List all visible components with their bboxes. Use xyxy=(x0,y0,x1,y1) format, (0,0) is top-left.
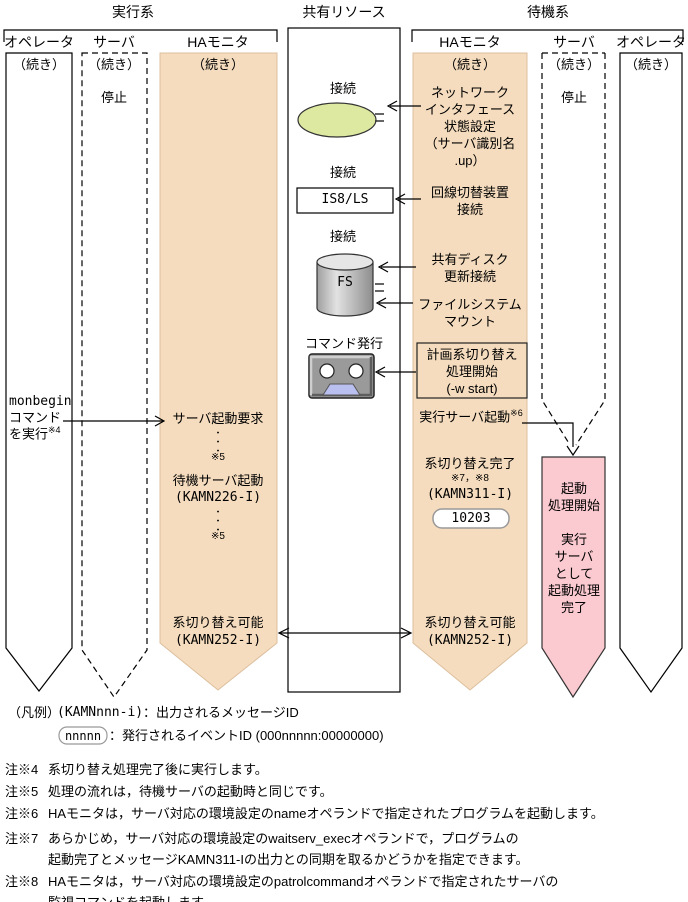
standby-switchable-message-id: (KAMN252-I) xyxy=(405,633,535,649)
lane-exec-operator xyxy=(6,53,72,691)
note6-text: HAモニタは，サーバ対応の環境設定のnameオペランドで指定されたプログラムを起… xyxy=(48,806,683,822)
lane-label-standby-server: サーバ xyxy=(534,34,614,51)
status-standby-server-stopped: 停止 xyxy=(534,90,614,106)
note6-ref: ※6 xyxy=(510,408,523,418)
note4-text: 系切り替え処理完了後に実行します。 xyxy=(48,762,683,778)
exec-switchable-message-id: (KAMN252-I) xyxy=(153,633,283,649)
standby-switchable-label: 系切り替え可能 xyxy=(405,615,535,631)
note7-label: 注※7 xyxy=(5,828,47,849)
step-filesystem-mount: ファイルシステム マウント xyxy=(405,296,535,330)
switch-complete-note-refs: ※7，※8 xyxy=(405,473,535,485)
line-switch-device-label: IS8/LS xyxy=(297,192,393,208)
note4-ref: ※4 xyxy=(48,425,61,435)
cont-standby-ha: （続き） xyxy=(415,57,525,73)
lane-label-exec-ha: HAモニタ xyxy=(163,34,273,51)
lane-label-exec-server: サーバ xyxy=(74,34,154,51)
note6-label: 注※6 xyxy=(5,806,47,822)
legend-message-desc: ：出力されるメッセージID xyxy=(143,705,393,721)
step-shared-disk-update: 共有ディスク 更新接続 xyxy=(405,251,535,285)
network-interface-icon xyxy=(298,103,376,137)
note5-label: 注※5 xyxy=(5,784,47,800)
step-switch-complete: 系切り替え完了 xyxy=(405,456,535,472)
lane-label-exec-operator: オペレータ xyxy=(0,34,79,51)
label-connect-network: 接続 xyxy=(303,81,383,97)
header-exec-system: 実行系 xyxy=(83,4,183,21)
cont-standby-server: （続き） xyxy=(534,57,614,73)
shared-disk-top-icon xyxy=(317,254,373,270)
lane-label-standby-operator: オペレータ xyxy=(611,34,688,51)
step-exec-server-start: 実行サーバ起動※6 xyxy=(405,409,537,425)
legend-message-key: (KAMNnnn-i) xyxy=(57,705,147,721)
lane-exec-server xyxy=(82,53,147,697)
exec-server-start-text: 実行サーバ起動 xyxy=(419,409,510,424)
line-exec-server-start xyxy=(522,423,573,447)
status-exec-server-stopped: 停止 xyxy=(74,90,154,106)
exec-switchable-label: 系切り替え可能 xyxy=(153,615,283,631)
label-connect-line-device: 接続 xyxy=(303,165,383,181)
cont-exec-ha: （続き） xyxy=(163,57,273,73)
header-standby-system: 待機系 xyxy=(498,4,598,21)
step-line-switch-connect: 回線切替装置 接続 xyxy=(405,184,535,218)
step-standby-server-start: 待機サーバ起動 xyxy=(153,473,283,489)
switchover-flow-diagram: 実行系 共有リソース 待機系 オペレータ サーバ HAモニタ HAモニタ サーバ… xyxy=(0,0,688,902)
label-connect-disk: 接続 xyxy=(303,229,383,245)
monbegin-exec-text: を実行 xyxy=(9,426,48,441)
header-shared-resources: 共有リソース xyxy=(288,4,400,21)
legend-event-desc: ：発行されるイベントID (000nnnnn:00000000) xyxy=(109,728,449,744)
server-startup-text: 起動 処理開始 実行 サーバ として 起動処理 完了 xyxy=(540,480,608,616)
disk-fs-label: FS xyxy=(317,275,373,291)
lane-label-standby-ha: HAモニタ xyxy=(415,34,525,51)
step-network-interface-setting: ネットワーク インタフェース 状態設定 （サーバ識別名 .up） xyxy=(405,84,535,169)
standby-server-start-message-id: (KAMN226-I) xyxy=(153,490,283,506)
note5-ref-2: ※5 xyxy=(153,531,283,543)
label-command-issue: コマンド発行 xyxy=(294,336,394,352)
monbegin-command-line1: monbegin xyxy=(9,394,79,410)
note5-text: 処理の流れは，待機サーバの起動時と同じです。 xyxy=(48,784,683,800)
switch-complete-message-id: (KAMN311-I) xyxy=(405,487,535,503)
note8-text: HAモニタは，サーバ対応の環境設定のpatrolcommandオペランドで指定さ… xyxy=(48,871,683,902)
note5-ref-1: ※5 xyxy=(153,452,283,464)
step-server-start-request: サーバ起動要求 xyxy=(153,411,283,427)
legend-event-key: nnnnn xyxy=(59,728,107,744)
step-planned-switch-start: 計画系切り替え 処理開始 (-w start) xyxy=(417,346,527,397)
lane-standby-server-funnel xyxy=(542,53,605,445)
cont-exec-server: （続き） xyxy=(74,57,154,73)
lane-exec-ha-monitor xyxy=(160,53,277,690)
note8-label: 注※8 xyxy=(5,871,47,892)
command-device-icon xyxy=(309,354,374,398)
note7-text: あらかじめ，サーバ対応の環境設定のwaitserv_execオペランドで，プログ… xyxy=(48,828,683,870)
cont-exec-operator: （続き） xyxy=(0,57,79,73)
monbegin-command-line3: を実行※4 xyxy=(9,426,89,442)
lane-standby-operator xyxy=(620,53,682,692)
monbegin-command-line2: コマンド xyxy=(9,410,79,426)
cont-standby-operator: （続き） xyxy=(611,57,688,73)
note4-label: 注※4 xyxy=(5,762,47,778)
event-id-value: 10203 xyxy=(433,511,509,527)
arrowhead-server-startup xyxy=(567,446,579,455)
